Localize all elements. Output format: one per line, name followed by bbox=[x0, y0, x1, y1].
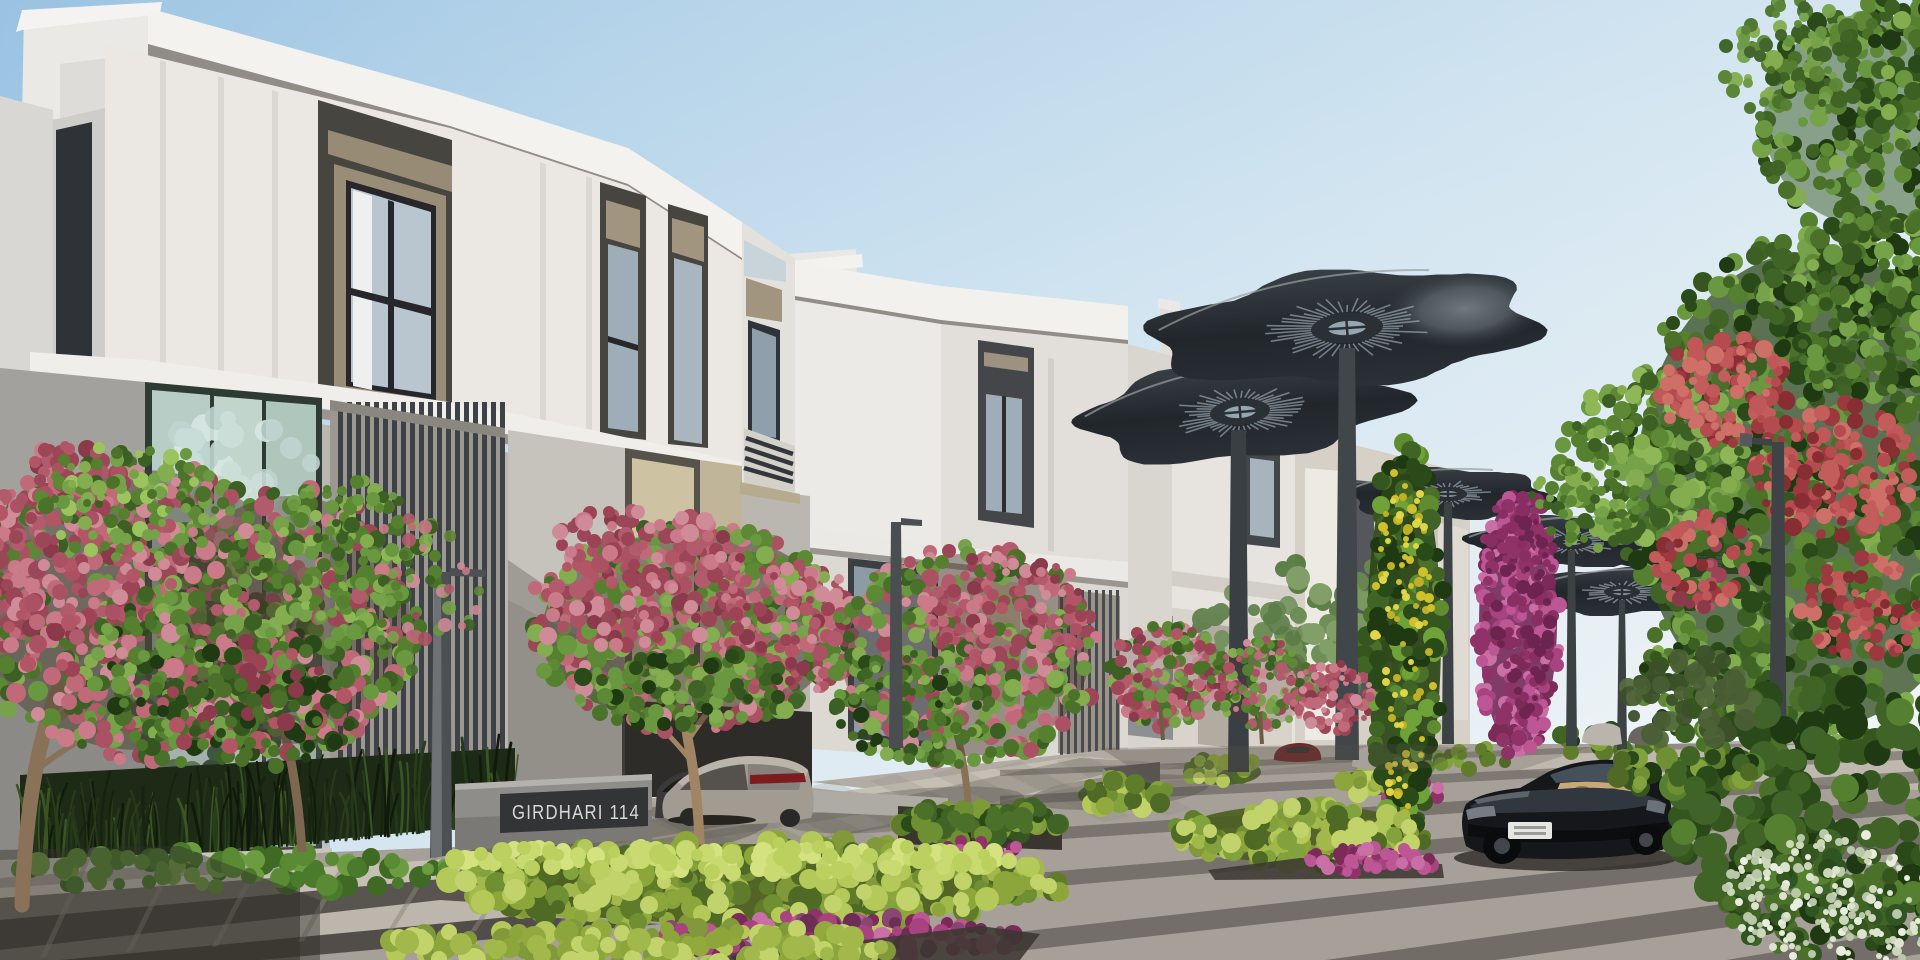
svg-text:GIRDHARI 114: GIRDHARI 114 bbox=[512, 802, 640, 824]
